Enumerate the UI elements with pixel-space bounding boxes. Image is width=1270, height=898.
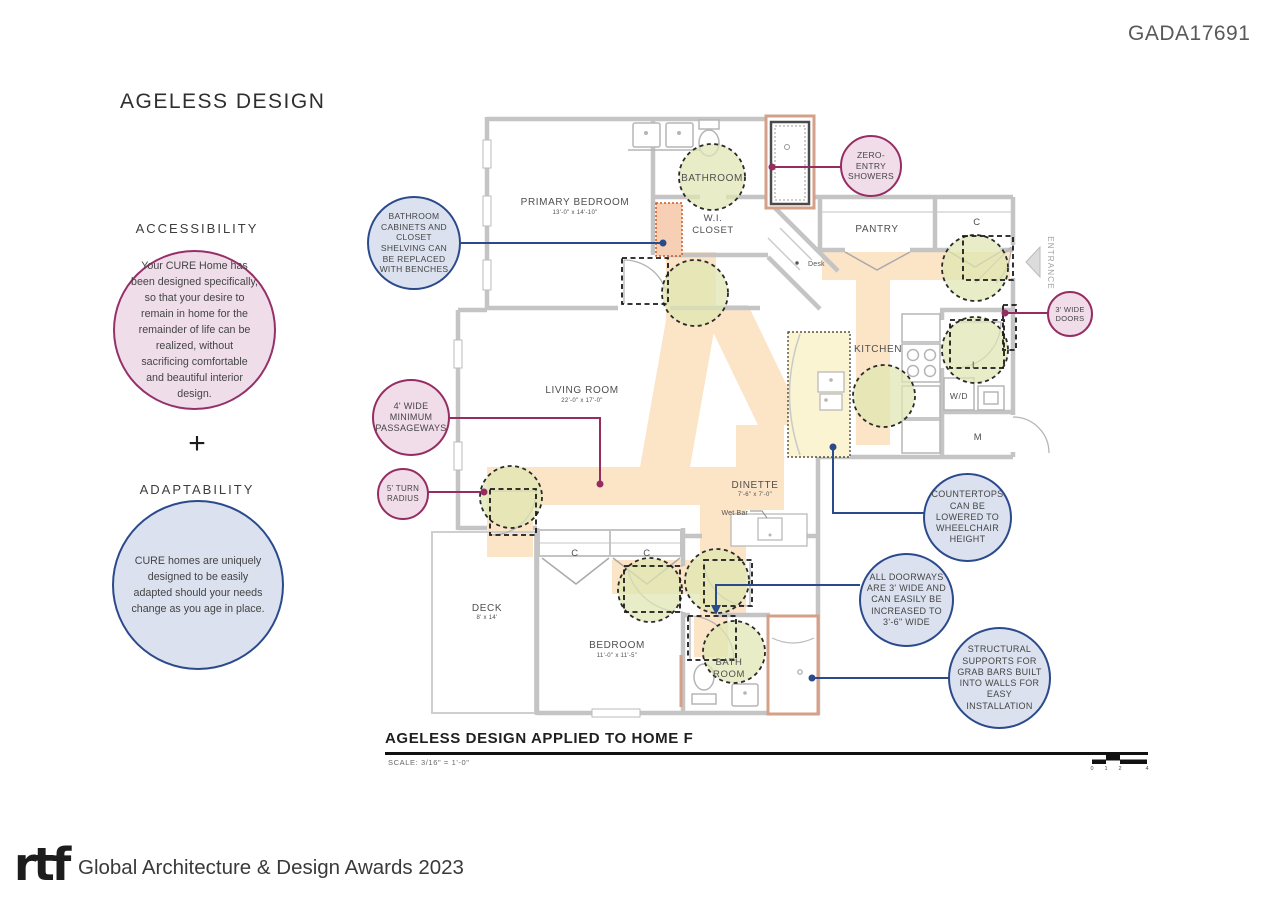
label-closet-1: C <box>571 548 578 559</box>
label-washer-dryer: W/D <box>950 391 968 401</box>
label-living-room-dims: 22'-0" x 17'-0" <box>561 398 602 404</box>
label-dinette-dims: 7'-6" x 7'-0" <box>738 492 772 498</box>
plan-scale: SCALE: 3/16" = 1'-0" <box>388 758 470 767</box>
callout-zero-entry-showers: ZERO-ENTRY SHOWERS <box>840 135 902 197</box>
label-pantry: PANTRY <box>855 224 898 235</box>
board-code: GADA17691 <box>1128 22 1250 46</box>
label-closet-top: C <box>973 217 980 228</box>
callout-3ft-wide-doors: 3' WIDE DOORS <box>1047 291 1093 337</box>
label-deck: DECK <box>472 603 502 614</box>
callout-turn-radius: 5' TURN RADIUS <box>377 468 429 520</box>
label-laundry: L <box>972 360 978 371</box>
label-primary-bedroom-dims: 13'-0" x 14'-10" <box>552 210 597 216</box>
label-bathroom: BATHROOM <box>681 173 743 184</box>
label-deck-dims: 8' x 14' <box>476 615 497 621</box>
label-desk: Desk <box>808 261 825 268</box>
scale-tick-0: 0 <box>1090 766 1093 772</box>
label-bath-room-1: BATH <box>715 657 742 668</box>
kitchen-island <box>788 332 850 457</box>
callout-bathroom-benches: BATHROOM CABINETS AND CLOSET SHELVING CA… <box>367 196 461 290</box>
shower-top <box>766 116 814 208</box>
scale-tick-2: 2 <box>1118 766 1121 772</box>
presentation-board: PRIMARY BEDROOM 13'-0" x 14'-10" BATHROO… <box>0 0 1270 898</box>
label-bedroom-dims: 11'-0" x 11'-5" <box>597 653 638 659</box>
label-primary-bedroom: PRIMARY BEDROOM <box>521 197 630 208</box>
label-wet-bar: Wet Bar <box>721 510 748 517</box>
label-kitchen: KITCHEN <box>854 344 902 355</box>
callout-passageways: 4' WIDE MINIMUM PASSAGEWAYS <box>372 379 450 456</box>
plus-sign: + <box>106 427 288 461</box>
label-mudroom: M <box>974 432 983 443</box>
label-dinette: DINETTE <box>732 480 779 491</box>
page-title: AGELESS DESIGN <box>120 90 325 114</box>
windows <box>454 140 640 717</box>
accessibility-heading: ACCESSIBILITY <box>106 221 288 236</box>
label-wi-closet-2: CLOSET <box>692 225 734 236</box>
awards-footer-text: Global Architecture & Design Awards 2023 <box>78 856 464 880</box>
scale-tick-1: 1 <box>1104 766 1107 772</box>
label-entrance: ENTRANCE <box>1046 236 1055 290</box>
adaptability-heading: ADAPTABILITY <box>106 482 288 497</box>
deck-outline <box>432 532 535 713</box>
rtf-logo: rtf <box>14 838 68 891</box>
label-wi-closet-1: W.I. <box>704 213 723 224</box>
scale-tick-4: 4 <box>1145 766 1148 772</box>
label-closet-2: C <box>643 548 650 559</box>
label-bath-room-2: ROOM <box>713 669 745 680</box>
callout-grab-bars: STRUCTURAL SUPPORTS FOR GRAB BARS BUILT … <box>948 627 1051 729</box>
scale-bar: 0 1 2 4 <box>1090 755 1148 772</box>
entrance-arrow-icon <box>1026 247 1040 277</box>
plan-title: AGELESS DESIGN APPLIED TO HOME F <box>385 730 693 747</box>
closet-shelving-highlight <box>656 203 682 256</box>
label-bedroom: BEDROOM <box>589 640 645 651</box>
accessibility-circle: Your CURE Home has been designed specifi… <box>113 250 276 410</box>
label-living-room: LIVING ROOM <box>545 385 618 396</box>
adaptability-body: CURE homes are uniquely designed to be e… <box>130 553 266 617</box>
callout-countertops: COUNTERTOPS CAN BE LOWERED TO WHEELCHAIR… <box>923 473 1012 562</box>
title-underline <box>385 752 1148 755</box>
accessibility-body: Your CURE Home has been designed specifi… <box>131 258 258 402</box>
callout-doorways: ALL DOORWAYS ARE 3' WIDE AND CAN EASILY … <box>859 553 954 647</box>
adaptability-circle: CURE homes are uniquely designed to be e… <box>112 500 284 670</box>
